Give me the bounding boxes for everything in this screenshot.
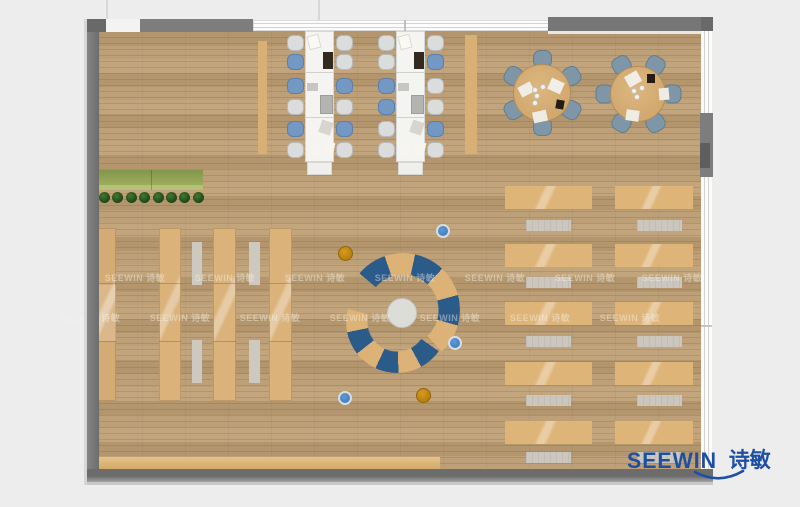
left-wall [87,19,99,482]
top-left-corner [87,19,106,32]
brand-swoosh-icon [693,470,745,484]
top-window-line [253,23,549,24]
floor-plan: SEEWIN 诗敏SEEWIN 诗敏SEEWIN 诗敏SEEWIN 诗敏SEEW… [0,0,800,507]
walls-layer [0,0,800,507]
top-wall [140,19,253,32]
window-mullion [404,20,406,31]
top-wall [548,17,713,31]
right-wall-cabinet [700,143,710,168]
door-opening [106,19,140,32]
right-window-line [704,31,705,469]
top-right-corner [701,17,713,31]
bottom-wall [87,469,713,482]
brand-logo: SEEWIN 诗敏 [627,449,771,473]
wall-stub [106,0,108,19]
top-window [253,20,549,31]
right-window [701,31,712,469]
wall-stub [318,0,320,21]
window-sill [548,31,701,34]
right-window-divider [701,325,712,327]
outer-face [87,482,713,485]
top-window-line [253,27,549,28]
right-window-line [708,31,709,469]
